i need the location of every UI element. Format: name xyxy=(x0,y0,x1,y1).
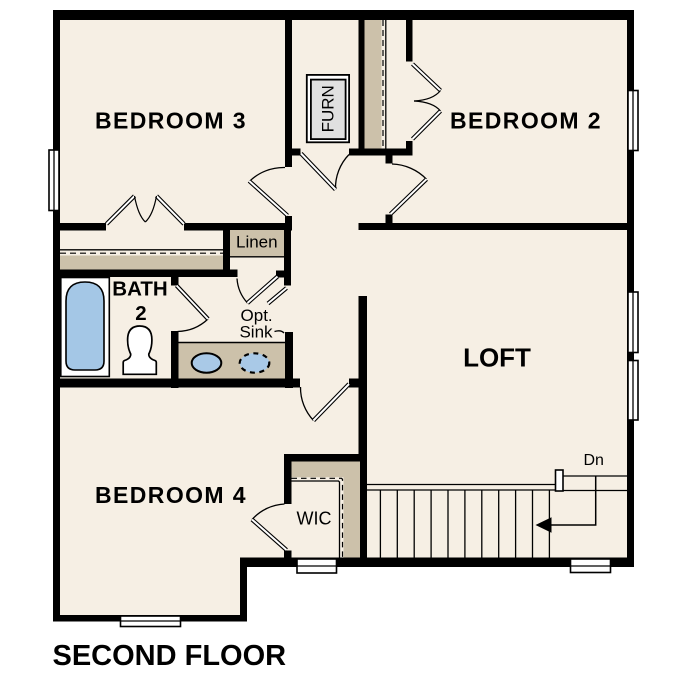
svg-text:BEDROOM 2: BEDROOM 2 xyxy=(450,107,602,133)
svg-text:FURN: FURN xyxy=(319,85,338,132)
svg-text:SECOND FLOOR: SECOND FLOOR xyxy=(53,640,287,672)
svg-text:BEDROOM 3: BEDROOM 3 xyxy=(95,108,247,134)
svg-text:2: 2 xyxy=(135,302,146,325)
svg-text:BATH: BATH xyxy=(112,278,167,301)
svg-text:WIC: WIC xyxy=(297,509,332,529)
svg-text:Dn: Dn xyxy=(584,452,604,469)
svg-text:Sink: Sink xyxy=(239,323,273,342)
svg-text:BEDROOM 4: BEDROOM 4 xyxy=(95,482,247,508)
svg-text:Linen: Linen xyxy=(236,233,278,252)
svg-text:LOFT: LOFT xyxy=(463,343,531,373)
